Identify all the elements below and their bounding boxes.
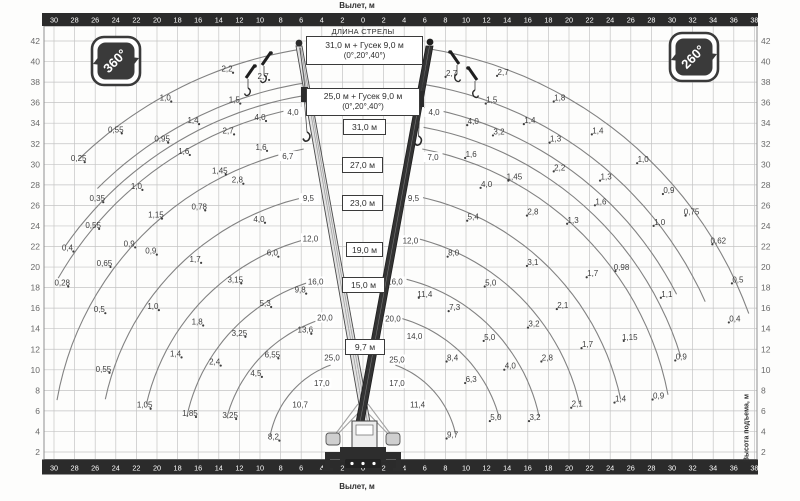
boom-tip-locus-arc xyxy=(187,279,320,416)
x-tick-label-bottom: 22 xyxy=(132,464,140,473)
capacity-label: 8,0 xyxy=(448,249,460,258)
capacity-label: 9,7 xyxy=(447,431,459,440)
y-tick-label-left: 8 xyxy=(35,385,40,395)
capacity-label: 3,2 xyxy=(529,413,541,422)
boom-tip-locus-arc xyxy=(407,279,539,416)
x-tick-label-bottom: 6 xyxy=(423,464,427,473)
config-box-31m-jib: 31,0 м + Гусек 9,0 м (0°,20°,40°) xyxy=(306,36,423,65)
boom-left-head-pulley xyxy=(296,40,303,47)
capacity-label: 11,4 xyxy=(417,290,433,299)
capacity-label: 3,15 xyxy=(227,275,243,284)
capacity-label: 12,0 xyxy=(303,234,319,243)
x-tick-label-bottom: 12 xyxy=(235,464,243,473)
capacity-label: 4,5 xyxy=(250,369,262,378)
capacity-label: 5,3 xyxy=(260,299,272,308)
outrigger-pad-right xyxy=(393,468,404,471)
capacity-label: 0,55 xyxy=(96,365,112,374)
y-tick-label-left: 42 xyxy=(31,36,41,46)
boom-tip-locus-arc xyxy=(146,238,313,405)
capacity-label: 12,0 xyxy=(403,236,419,245)
x-tick-label-bottom: 24 xyxy=(112,464,120,473)
boom-right-head-pulley xyxy=(427,39,434,46)
y-tick-label-left: 32 xyxy=(31,139,41,149)
capacity-label: 0,4 xyxy=(62,244,74,253)
y-tick-label-left: 38 xyxy=(31,77,41,87)
capacity-label: 1,4 xyxy=(524,116,536,125)
y-tick-label-right: 16 xyxy=(761,303,771,313)
capacity-label: 1,8 xyxy=(554,94,566,103)
y-tick-label-right: 32 xyxy=(761,139,771,149)
y-tick-label-left: 26 xyxy=(31,200,41,210)
capacity-label: 1,0 xyxy=(160,94,172,103)
x-tick-label-top: 14 xyxy=(503,16,511,25)
capacity-label: 3,2 xyxy=(528,320,540,329)
capacity-label: 2,8 xyxy=(542,353,554,362)
boom-tip-locus-arc xyxy=(57,149,304,400)
y-tick-label-right: 6 xyxy=(761,406,766,416)
capacity-label: 0,25 xyxy=(71,154,87,163)
y-tick-label-left: 14 xyxy=(31,324,41,334)
boom-rest-pad-left xyxy=(326,433,340,445)
x-tick-label-bottom: 18 xyxy=(174,464,182,473)
capacity-label: 0,78 xyxy=(191,202,207,211)
capacity-label: 2,2 xyxy=(221,65,233,74)
y-tick-label-left: 24 xyxy=(31,221,41,231)
y-tick-label-left: 16 xyxy=(31,303,41,313)
capacity-label: 1,0 xyxy=(654,218,666,227)
x-tick-label-bottom: 14 xyxy=(503,464,511,473)
wheel-hub xyxy=(372,462,375,465)
capacity-label: 1,4 xyxy=(187,116,199,125)
capacity-label: 9,5 xyxy=(408,194,420,203)
config-box-line2: (0°,20°,40°) xyxy=(307,102,419,111)
y-tick-label-left: 28 xyxy=(31,180,41,190)
y-tick-label-right: 2 xyxy=(761,447,766,457)
capacity-label: 5,0 xyxy=(484,333,496,342)
boom-box-27m: 27,0 м xyxy=(342,157,383,173)
capacity-label: 3,2 xyxy=(493,127,505,136)
capacity-label: 2,7 xyxy=(446,69,458,78)
x-tick-label-bottom: 2 xyxy=(340,464,344,473)
x-tick-label-bottom: 30 xyxy=(50,464,58,473)
x-tick-label-top: 2 xyxy=(382,16,386,25)
x-tick-label-top: 28 xyxy=(71,16,79,25)
capacity-label: 16,0 xyxy=(308,277,324,286)
capacity-label: 10,7 xyxy=(292,401,308,410)
x-tick-label-top: 6 xyxy=(299,16,303,25)
capacity-label: 1,7 xyxy=(587,269,599,278)
boom-tip-locus-arc xyxy=(58,108,302,279)
boom-left-hook xyxy=(303,132,310,141)
capacity-label: 8,2 xyxy=(268,433,280,442)
capacity-label: 1,6 xyxy=(178,147,190,156)
y-tick-label-right: 8 xyxy=(761,385,766,395)
capacity-label: 0,55 xyxy=(85,221,101,230)
capacity-label: 3,25 xyxy=(222,411,238,420)
boom-tip-locus-arc xyxy=(66,96,304,246)
x-tick-label-bottom: 26 xyxy=(91,464,99,473)
outrigger-leg-right xyxy=(396,456,401,469)
x-tick-label-top: 30 xyxy=(668,16,676,25)
boom-tip-locus-arc xyxy=(418,196,621,399)
jib-pulley xyxy=(269,51,273,55)
capacity-label: 2,8 xyxy=(527,208,539,217)
x-tick-label-top: 18 xyxy=(544,16,552,25)
boom-box-19m: 19,0 м xyxy=(346,242,383,257)
capacity-label: 2,1 xyxy=(557,301,569,310)
y-tick-label-left: 6 xyxy=(35,406,40,416)
capacity-label: 4,0 xyxy=(505,362,517,371)
jib-pulley xyxy=(253,64,257,68)
crane-load-height-chart: 2,72,21,00,550,251,51,40,950,354,04,02,7… xyxy=(0,0,800,501)
boom-rest-pad-right xyxy=(386,433,400,445)
x-tick-label-top: 10 xyxy=(256,16,264,25)
x-tick-label-top: 20 xyxy=(153,16,161,25)
capacity-label: 0,9 xyxy=(653,391,665,400)
x-tick-label-top: 24 xyxy=(606,16,614,25)
capacity-label: 5,0 xyxy=(490,413,502,422)
outrigger-leg-left xyxy=(325,456,330,469)
capacity-label: 25,0 xyxy=(324,353,340,362)
y-tick-label-left: 10 xyxy=(31,365,41,375)
capacity-label: 6,0 xyxy=(267,249,279,258)
y-tick-label-left: 22 xyxy=(31,242,41,252)
capacity-label: 0,95 xyxy=(154,135,170,144)
y-tick-label-left: 36 xyxy=(31,98,41,108)
y-tick-label-right: 20 xyxy=(761,262,771,272)
capacity-label: 1,0 xyxy=(638,155,650,164)
x-tick-label-top: 0 xyxy=(361,16,365,25)
x-tick-label-bottom: 14 xyxy=(215,464,223,473)
capacity-label: 2,7 xyxy=(258,72,270,81)
x-tick-label-bottom: 32 xyxy=(689,464,697,473)
boom-tip-locus-arc xyxy=(105,196,308,399)
capacity-label: 7,0 xyxy=(427,153,439,162)
wheel-hub xyxy=(361,462,364,465)
x-tick-label-bottom: 36 xyxy=(730,464,738,473)
y-tick-label-right: 30 xyxy=(761,159,771,169)
capacity-label: 1,7 xyxy=(582,340,594,349)
capacity-label: 2,7 xyxy=(223,126,235,135)
y-tick-label-left: 18 xyxy=(31,283,41,293)
x-tick-label-top: 6 xyxy=(423,16,427,25)
outrigger-pad-left xyxy=(322,468,333,471)
x-tick-label-bottom: 12 xyxy=(483,464,491,473)
x-tick-label-bottom: 22 xyxy=(586,464,594,473)
capacity-label: 5,0 xyxy=(485,278,497,287)
config-box-line1: 25,0 м + Гусек 9,0 м xyxy=(307,92,419,102)
y-tick-label-right: 38 xyxy=(761,77,771,87)
capacity-label: 1,5 xyxy=(229,96,241,105)
capacity-label: 1,6 xyxy=(466,150,478,159)
capacity-label: 0,75 xyxy=(684,208,700,217)
capacity-label: 20,0 xyxy=(385,314,401,323)
capacity-label: 4,0 xyxy=(481,180,493,189)
capacity-label: 17,0 xyxy=(389,379,405,388)
truck-cab-window xyxy=(356,425,373,435)
capacity-label: 1,15 xyxy=(622,333,638,342)
capacity-label: 13,6 xyxy=(298,326,314,335)
capacity-label: 17,0 xyxy=(314,379,330,388)
x-tick-label-top: 16 xyxy=(194,16,202,25)
y-tick-label-right: 34 xyxy=(761,118,771,128)
capacity-label: 1,85 xyxy=(182,409,198,418)
config-box-line2: (0°,20°,40°) xyxy=(307,51,422,60)
chart-canvas: 2,72,21,00,550,251,51,40,950,354,04,02,7… xyxy=(0,0,800,501)
y-tick-label-left: 4 xyxy=(35,426,40,436)
y-tick-label-right: 18 xyxy=(761,283,771,293)
capacity-label: 1,5 xyxy=(486,96,498,105)
x-tick-label-bottom: 6 xyxy=(299,464,303,473)
boom-box-23m: 23,0 м xyxy=(342,195,383,211)
capacity-label: 0,5 xyxy=(94,305,106,314)
capacity-label: 1,4 xyxy=(615,395,627,404)
x-tick-label-bottom: 10 xyxy=(256,464,264,473)
jib-tip-icon xyxy=(245,64,257,95)
capacity-label: 5,4 xyxy=(468,213,480,222)
y-tick-label-right: 36 xyxy=(761,98,771,108)
capacity-label: 1,45 xyxy=(507,173,523,182)
capacity-label: 0,9 xyxy=(124,239,136,248)
capacity-label: 0,35 xyxy=(89,194,105,203)
x-tick-label-bottom: 26 xyxy=(627,464,635,473)
y-axis-title-right: Высота подъема, м xyxy=(744,394,751,462)
boom-box-15m: 15,0 м xyxy=(342,277,385,293)
capacity-label: 0,9 xyxy=(663,186,675,195)
y-tick-label-right: 12 xyxy=(761,344,771,354)
boom-box-31m: 31,0 м xyxy=(343,119,386,135)
capacity-label: 1,3 xyxy=(550,135,562,144)
x-tick-label-top: 38 xyxy=(750,16,758,25)
capacity-label: 8,4 xyxy=(447,353,459,362)
capacity-label: 2,7 xyxy=(498,68,510,77)
capacity-label: 0,5 xyxy=(732,275,744,284)
x-tick-label-top: 12 xyxy=(235,16,243,25)
capacity-label: 1,1 xyxy=(661,290,673,299)
x-tick-label-top: 34 xyxy=(709,16,717,25)
capacity-label: 6,3 xyxy=(466,375,478,384)
capacity-label: 14,0 xyxy=(407,332,423,341)
capacity-labels: 2,72,21,00,550,251,51,40,950,354,04,02,7… xyxy=(54,65,744,442)
capacity-label: 0,62 xyxy=(711,236,727,245)
x-tick-label-bottom: 2 xyxy=(382,464,386,473)
capacity-label: 9,8 xyxy=(295,286,307,295)
capacity-label: 3,1 xyxy=(527,258,539,267)
badge-260: 260° xyxy=(670,33,718,81)
capacity-label: 1,4 xyxy=(592,126,604,135)
x-tick-label-top: 26 xyxy=(627,16,635,25)
capacity-label: 1,4 xyxy=(170,349,182,358)
capacity-label: 1,8 xyxy=(192,318,204,327)
y-tick-label-left: 40 xyxy=(31,57,41,67)
capacity-label: 2,2 xyxy=(554,163,566,172)
capacity-label: 2,4 xyxy=(209,358,221,367)
x-tick-label-top: 20 xyxy=(565,16,573,25)
x-tick-label-bottom: 30 xyxy=(668,464,676,473)
x-tick-label-bottom: 38 xyxy=(750,464,758,473)
y-tick-label-left: 20 xyxy=(31,262,41,272)
capacity-label: 4,0 xyxy=(253,215,265,224)
x-tick-label-top: 22 xyxy=(586,16,594,25)
y-tick-label-right: 24 xyxy=(761,221,771,231)
x-tick-label-bottom: 10 xyxy=(462,464,470,473)
capacity-label: 0,98 xyxy=(614,263,630,272)
y-tick-label-right: 40 xyxy=(761,57,771,67)
capacity-label: 7,3 xyxy=(449,303,461,312)
capacity-label: 1,6 xyxy=(255,143,267,152)
capacity-label: 1,0 xyxy=(147,302,159,311)
capacity-label: 0,55 xyxy=(108,125,124,134)
x-tick-label-top: 22 xyxy=(132,16,140,25)
x-axis-title-bottom: Вылет, м xyxy=(339,482,375,491)
capacity-label: 0,4 xyxy=(729,314,741,323)
y-tick-label-right: 4 xyxy=(761,426,766,436)
capacity-label: 0,28 xyxy=(54,278,70,287)
capacity-label: 1,0 xyxy=(131,182,143,191)
capacity-label: 9,5 xyxy=(303,194,315,203)
x-tick-label-bottom: 16 xyxy=(194,464,202,473)
x-tick-label-bottom: 34 xyxy=(709,464,717,473)
y-tick-label-right: 42 xyxy=(761,36,771,46)
boom-tip-locus-arc xyxy=(413,238,580,405)
boom-length-header: ДЛИНА СТРЕЛЫ xyxy=(332,27,395,36)
wheel-hub xyxy=(350,462,353,465)
capacity-label: 6,7 xyxy=(282,152,294,161)
capacity-label: 20,0 xyxy=(317,313,333,322)
y-tick-label-right: 22 xyxy=(761,242,771,252)
x-tick-label-top: 16 xyxy=(524,16,532,25)
boom-tip-locus-arc xyxy=(97,83,304,188)
x-tick-label-bottom: 20 xyxy=(565,464,573,473)
x-tick-label-top: 14 xyxy=(215,16,223,25)
y-tick-label-left: 12 xyxy=(31,344,41,354)
y-tick-label-right: 26 xyxy=(761,200,771,210)
x-tick-label-top: 36 xyxy=(730,16,738,25)
capacity-label: 1,3 xyxy=(601,173,613,182)
x-axis-title-top: Вылет, м xyxy=(339,1,375,10)
capacity-label: 2,8 xyxy=(232,176,244,185)
jib-pulley xyxy=(466,66,470,70)
x-tick-label-top: 32 xyxy=(689,16,697,25)
x-tick-label-bottom: 24 xyxy=(606,464,614,473)
x-tick-label-bottom: 18 xyxy=(544,464,552,473)
capacity-label: 4,0 xyxy=(287,108,299,117)
x-tick-label-top: 4 xyxy=(320,16,324,25)
boom-box-9-7m: 9,7 м xyxy=(345,339,385,355)
capacity-label: 1,05 xyxy=(137,401,153,410)
capacity-label: 6,55 xyxy=(265,350,281,359)
capacity-label: 1,15 xyxy=(148,211,164,220)
capacity-label: 2,1 xyxy=(572,400,584,409)
capacity-label: 1,45 xyxy=(212,166,228,175)
x-tick-label-top: 12 xyxy=(483,16,491,25)
x-tick-label-top: 8 xyxy=(279,16,283,25)
badge-360: 360° xyxy=(92,37,140,85)
capacity-label: 4,0 xyxy=(254,113,266,122)
x-tick-label-top: 28 xyxy=(647,16,655,25)
x-tick-label-bottom: 28 xyxy=(647,464,655,473)
y-tick-label-left: 2 xyxy=(35,447,40,457)
x-tick-label-bottom: 8 xyxy=(279,464,283,473)
x-tick-label-bottom: 16 xyxy=(524,464,532,473)
capacity-label: 4,0 xyxy=(468,117,480,126)
jib-hook xyxy=(245,88,251,96)
x-tick-label-bottom: 20 xyxy=(153,464,161,473)
capacity-label: 25,0 xyxy=(389,356,405,365)
y-tick-label-right: 14 xyxy=(761,324,771,334)
capacity-label: 1,7 xyxy=(190,255,202,264)
capacity-label: 1,3 xyxy=(568,216,580,225)
x-tick-label-top: 8 xyxy=(443,16,447,25)
capacity-label: 3,25 xyxy=(232,329,248,338)
y-tick-label-right: 28 xyxy=(761,180,771,190)
x-tick-label-bottom: 8 xyxy=(443,464,447,473)
y-tick-label-left: 30 xyxy=(31,159,41,169)
x-tick-label-top: 2 xyxy=(340,16,344,25)
jib-pulley xyxy=(448,50,452,54)
capacity-label: 4,0 xyxy=(429,108,441,117)
capacity-label: 1,6 xyxy=(595,197,607,206)
capacity-label: 0,9 xyxy=(145,247,157,256)
config-box-25m-jib: 25,0 м + Гусек 9,0 м (0°,20°,40°) xyxy=(306,88,420,116)
capacity-label: 0,9 xyxy=(676,352,688,361)
y-tick-label-left: 34 xyxy=(31,118,41,128)
x-tick-label-top: 18 xyxy=(174,16,182,25)
y-tick-label-right: 10 xyxy=(761,365,771,375)
x-tick-label-top: 10 xyxy=(462,16,470,25)
x-tick-label-bottom: 28 xyxy=(71,464,79,473)
x-tick-label-top: 4 xyxy=(402,16,406,25)
config-box-line1: 31,0 м + Гусек 9,0 м xyxy=(307,41,422,51)
x-tick-label-top: 24 xyxy=(112,16,120,25)
x-tick-label-top: 30 xyxy=(50,16,58,25)
capacity-label: 0,65 xyxy=(97,259,113,268)
capacity-label: 11,4 xyxy=(410,401,426,410)
x-tick-label-top: 26 xyxy=(91,16,99,25)
